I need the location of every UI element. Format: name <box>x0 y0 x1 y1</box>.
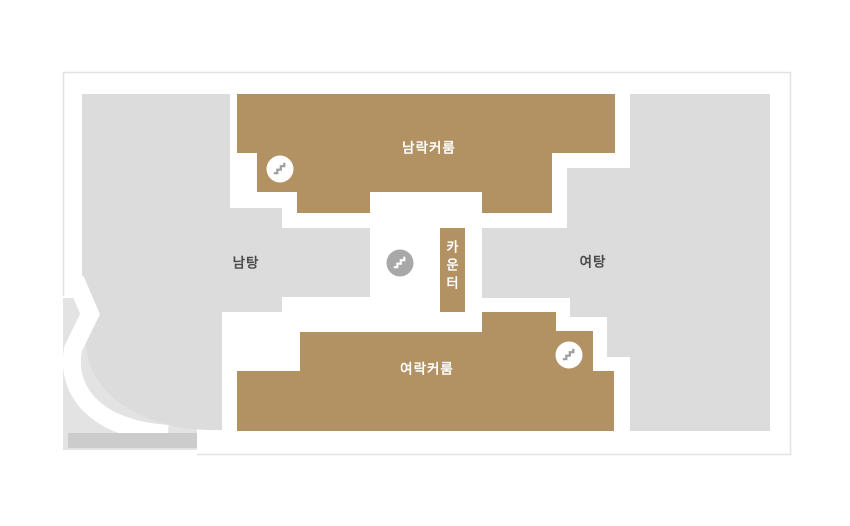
room-label-womens-bath: 여탕 <box>580 254 607 270</box>
stairs-badge-womens-locker <box>556 342 583 369</box>
room-label-mens-bath: 남탕 <box>233 255 260 271</box>
counter-char-2: 운 <box>447 258 459 273</box>
counter-char-3: 터 <box>447 276 459 291</box>
spa-floor-plan-page: 남락커룸 남탕 여탕 여락커룸 카 운 터 <box>0 0 850 526</box>
entrance-strip <box>68 433 197 448</box>
stairs-badge-mens-locker <box>267 156 294 183</box>
room-label-counter: 카 운 터 <box>447 240 459 291</box>
floor-plan-svg: 남락커룸 남탕 여탕 여락커룸 카 운 터 <box>0 0 850 526</box>
room-label-mens-locker: 남락커룸 <box>402 140 456 156</box>
stairs-badge-center <box>387 250 414 277</box>
counter-char-1: 카 <box>447 240 459 255</box>
room-label-womens-locker: 여락커룸 <box>400 361 454 377</box>
